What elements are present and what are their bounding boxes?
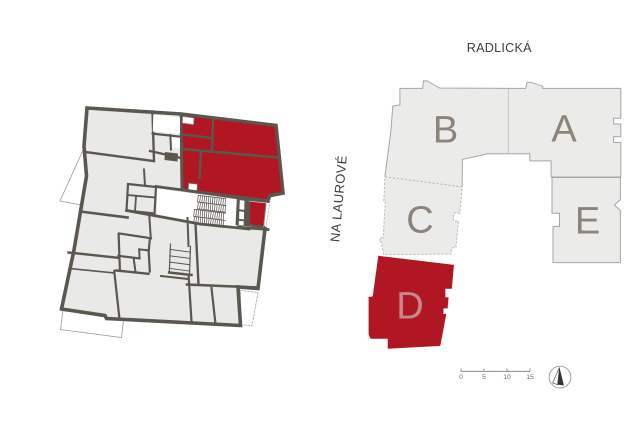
svg-text:A: A xyxy=(551,109,577,151)
svg-text:10: 10 xyxy=(503,374,511,381)
svg-text:D: D xyxy=(396,285,423,327)
svg-text:0: 0 xyxy=(459,374,463,381)
svg-text:RADLICKÁ: RADLICKÁ xyxy=(467,40,532,55)
svg-text:C: C xyxy=(406,200,433,242)
svg-text:5: 5 xyxy=(482,374,486,381)
svg-text:B: B xyxy=(433,110,458,152)
svg-text:15: 15 xyxy=(526,374,534,381)
svg-text:E: E xyxy=(575,200,600,242)
